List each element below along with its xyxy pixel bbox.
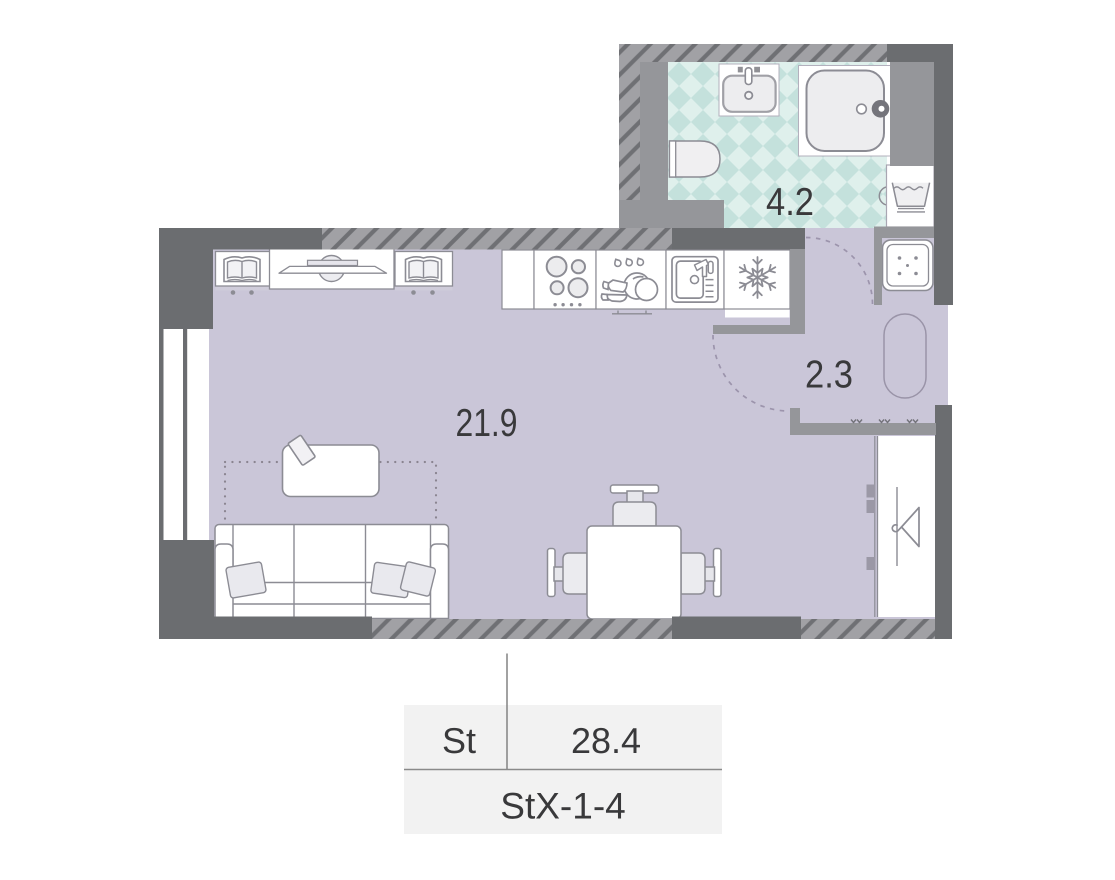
svg-text:2.3: 2.3	[805, 354, 853, 397]
svg-text:4.2: 4.2	[766, 181, 814, 224]
svg-text:28.4: 28.4	[571, 720, 641, 761]
svg-text:StX-1-4: StX-1-4	[500, 786, 625, 827]
svg-text:21.9: 21.9	[456, 402, 518, 445]
svg-text:St: St	[442, 720, 476, 761]
